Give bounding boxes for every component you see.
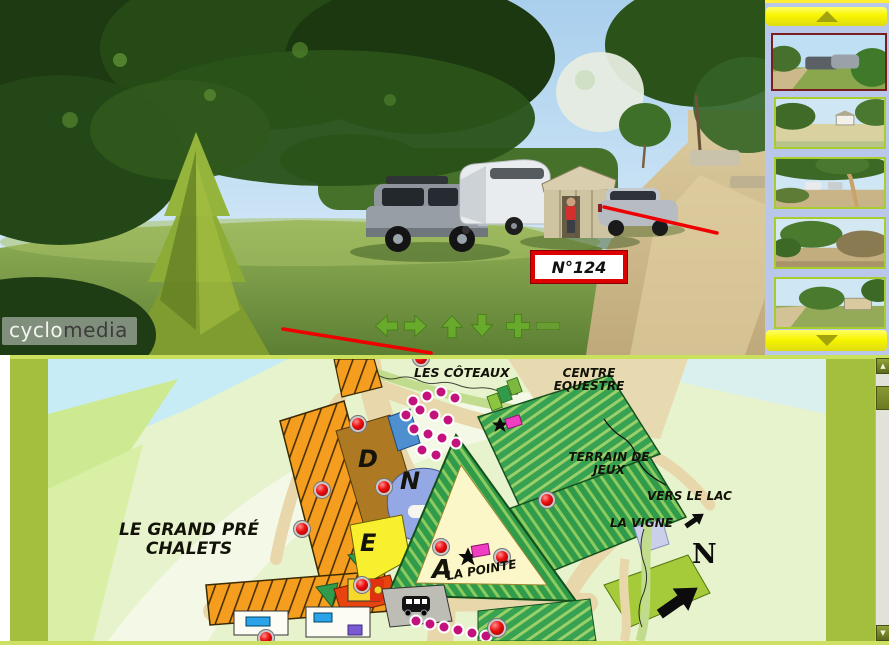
pan-right-icon — [402, 312, 430, 340]
thumbnail-1-image — [773, 35, 885, 89]
campsite-map-section: LE GRAND PRÉ CHALETS LES CÔTEAUX CENTRE … — [0, 355, 889, 645]
pano-marker[interactable] — [494, 549, 511, 566]
sidebar-top-edge — [765, 0, 889, 3]
zoom-out-icon — [534, 312, 562, 340]
pano-marker[interactable] — [488, 619, 507, 638]
thumbnail-3-image — [776, 159, 884, 207]
scroll-up-icon — [816, 11, 838, 22]
thumbnail-3[interactable] — [774, 157, 886, 209]
thumbnail-4[interactable] — [774, 217, 886, 269]
thumbnails-scroll-down-button[interactable] — [766, 330, 887, 351]
zoom-in-icon — [504, 312, 532, 340]
thumbnail-1[interactable] — [771, 33, 887, 91]
caravan — [460, 160, 552, 235]
pan-down-button[interactable] — [468, 312, 496, 340]
pan-right-button[interactable] — [402, 312, 430, 340]
zoom-out-button[interactable] — [534, 312, 562, 340]
person — [566, 198, 576, 234]
map-bottom-border — [0, 641, 889, 645]
thumbnail-2[interactable] — [774, 97, 886, 149]
zoom-in-button[interactable] — [504, 312, 532, 340]
scroll-down-icon — [816, 335, 838, 346]
thumbnail-2-image — [776, 99, 884, 147]
map-scroll-down-button[interactable]: ▼ — [876, 625, 889, 641]
map-scroll-up-button[interactable]: ▲ — [876, 358, 889, 374]
pan-left-icon — [372, 312, 400, 340]
pan-up-button[interactable] — [438, 312, 466, 340]
watermark-dark-text: media — [63, 318, 128, 342]
pano-marker[interactable] — [433, 539, 450, 556]
map-scrollbar-thumb[interactable] — [876, 386, 889, 410]
watermark-light-text: cyclo — [9, 318, 63, 342]
thumbnails-scroll-up-button[interactable] — [766, 7, 887, 26]
thumbnail-5[interactable] — [774, 277, 886, 329]
pitch-label[interactable]: N°124 — [531, 251, 627, 283]
pano-marker[interactable] — [350, 416, 367, 433]
panorama-photo[interactable]: N°124 cyclomedia — [0, 0, 766, 355]
panorama-scene — [0, 0, 766, 355]
thumbnail-4-image — [776, 219, 884, 267]
campsite-map[interactable]: LE GRAND PRÉ CHALETS LES CÔTEAUX CENTRE … — [48, 359, 826, 641]
pano-marker[interactable] — [294, 521, 311, 538]
thumbnail-5-image — [776, 279, 884, 327]
pan-up-icon — [438, 312, 466, 340]
pano-marker[interactable] — [376, 479, 393, 496]
map-right-frame — [826, 359, 875, 641]
pano-marker[interactable] — [354, 577, 371, 594]
campsite-map-drawing — [48, 359, 826, 641]
pano-marker[interactable] — [314, 482, 331, 499]
cyclomedia-watermark: cyclomedia — [2, 317, 137, 345]
pano-navigation — [372, 312, 562, 340]
thumbnail-sidebar — [765, 0, 889, 355]
pan-down-icon — [468, 312, 496, 340]
pano-marker[interactable] — [539, 492, 556, 509]
map-scrollbar[interactable]: ▲ ▼ — [875, 358, 889, 641]
pan-left-button[interactable] — [372, 312, 400, 340]
map-left-frame — [10, 359, 48, 641]
